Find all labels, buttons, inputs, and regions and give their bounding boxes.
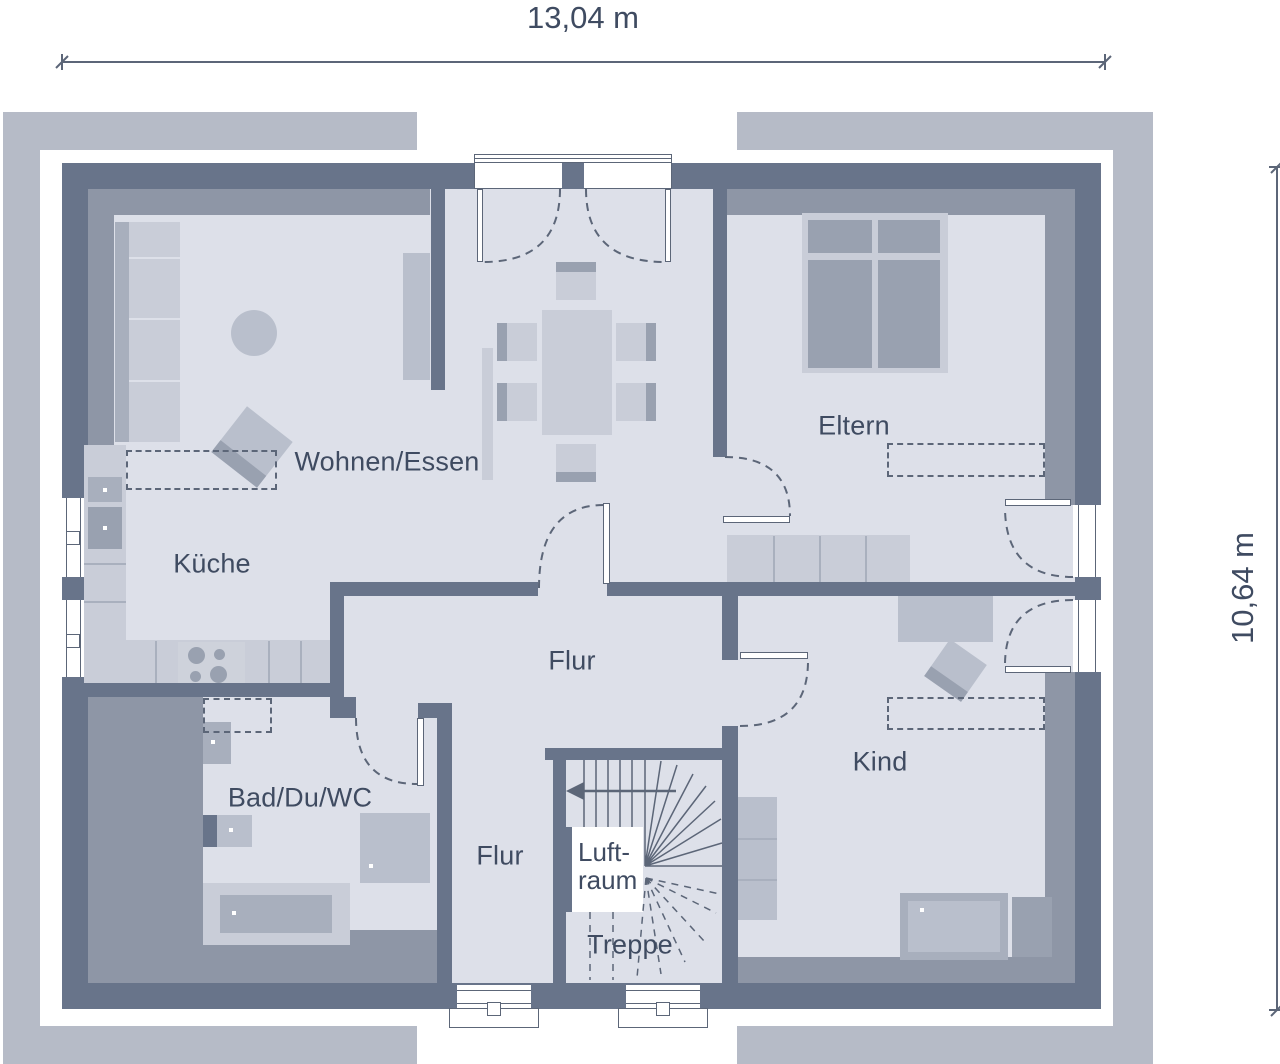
room-label-hall-lower: Flur (476, 841, 523, 872)
door-arc-french-right (586, 189, 665, 262)
stairs-direction-arrow (566, 782, 676, 800)
dimension-line-top (56, 54, 1111, 70)
room-label-kitchen: Küche (173, 549, 251, 580)
room-label-airspace: Luft- raum (578, 838, 637, 894)
room-label-child: Kind (853, 747, 908, 778)
door-arc-parents-terrace (1005, 507, 1073, 577)
door-arc-bath (356, 718, 417, 784)
door-arc-parents (725, 457, 790, 516)
door-arc-child (740, 661, 808, 726)
door-arc-french-left (483, 189, 560, 262)
room-label-bath: Bad/Du/WC (228, 783, 372, 814)
room-label-hall-upper: Flur (548, 646, 595, 677)
room-label-parents: Eltern (818, 411, 890, 442)
dimension-height-label: 10,64 m (1225, 532, 1261, 644)
airspace-line2: raum (578, 866, 637, 894)
dimension-line-right (1269, 161, 1280, 1016)
room-label-stairs: Treppe (587, 930, 673, 961)
floor-plan: Wohnen/Essen Küche Eltern Flur Flur Bad/… (0, 0, 1280, 1064)
door-arc-child-terrace (1005, 600, 1073, 665)
room-label-living: Wohnen/Essen (294, 447, 479, 478)
door-arc-kitchen (539, 505, 604, 588)
dimension-width-label: 13,04 m (527, 0, 639, 36)
linework-overlay (0, 0, 1280, 1064)
airspace-line1: Luft- (578, 838, 637, 866)
